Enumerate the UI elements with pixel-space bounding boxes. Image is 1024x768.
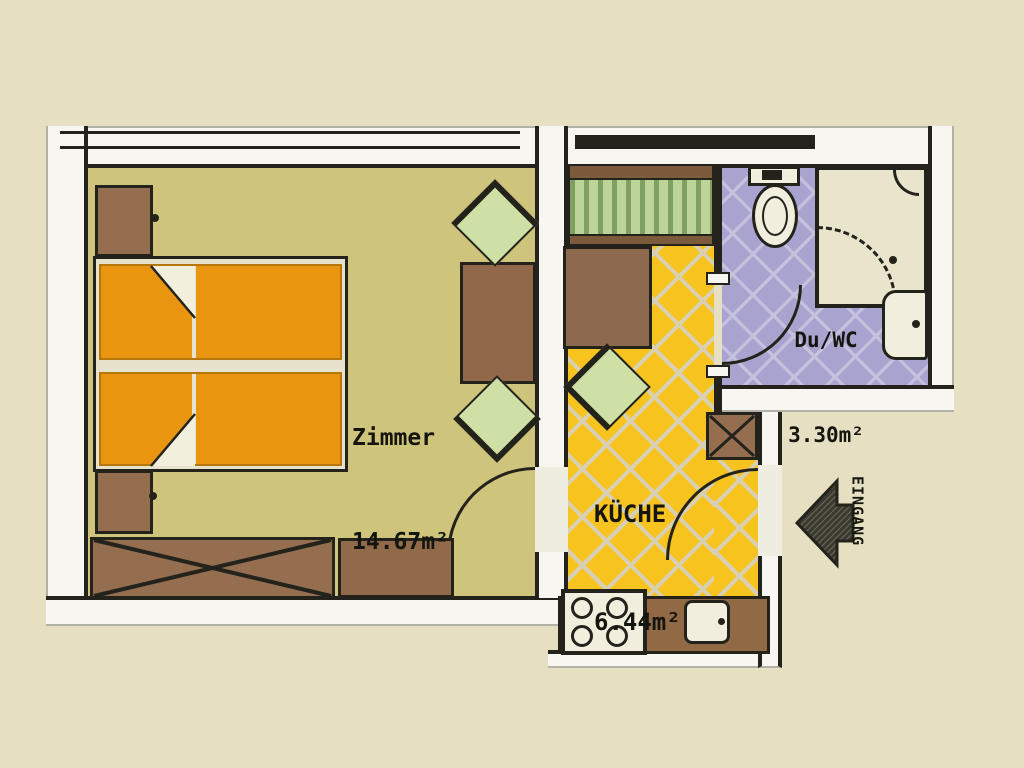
room-area-zimmer: 14.67m² bbox=[352, 525, 449, 560]
room-area-kueche: 6.44m² bbox=[594, 604, 681, 640]
room-label-bad: Du/WC 3.30m² bbox=[772, 262, 880, 514]
room-name-kueche: KÜCHE bbox=[594, 496, 681, 532]
room-name-zimmer: Zimmer bbox=[352, 421, 449, 456]
room-area-bad: 3.30m² bbox=[772, 420, 880, 452]
floor-plan: EINGANG Zimmer 14.67m² KÜCHE 6.44m² Du/W… bbox=[0, 0, 1024, 768]
room-label-kueche: KÜCHE 6.44m² bbox=[594, 424, 681, 712]
room-name-bad: Du/WC bbox=[772, 325, 880, 357]
room-label-zimmer: Zimmer 14.67m² bbox=[352, 352, 449, 628]
